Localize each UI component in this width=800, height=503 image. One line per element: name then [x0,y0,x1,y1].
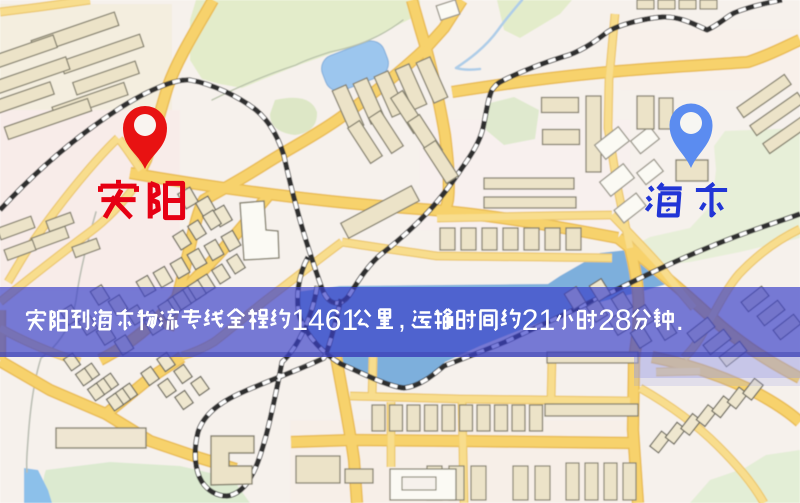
svg-text:,: , [398,302,406,335]
svg-text:.: . [676,304,684,337]
svg-text:1461: 1461 [291,304,358,337]
svg-text:21: 21 [522,304,555,337]
svg-text:28: 28 [598,304,631,337]
